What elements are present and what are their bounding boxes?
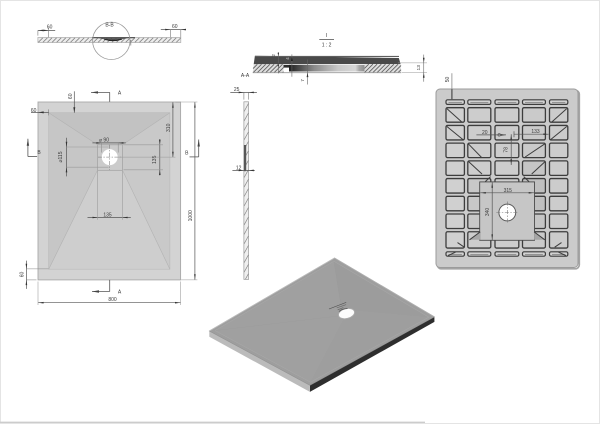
svg-text:60: 60 — [47, 25, 53, 31]
svg-text:310: 310 — [166, 123, 172, 132]
svg-text:133: 133 — [531, 129, 540, 135]
svg-text:340: 340 — [485, 208, 491, 217]
svg-text:B-B: B-B — [105, 22, 114, 28]
svg-text:I: I — [326, 33, 327, 39]
svg-text:135: 135 — [103, 212, 112, 218]
svg-text:60: 60 — [31, 108, 37, 114]
svg-text:60: 60 — [172, 24, 178, 30]
svg-text:1000: 1000 — [188, 210, 194, 221]
svg-text:315: 315 — [504, 188, 513, 194]
svg-text:135: 135 — [152, 155, 158, 164]
svg-text:60: 60 — [19, 272, 25, 278]
svg-text:60: 60 — [68, 93, 74, 99]
svg-text:20: 20 — [482, 130, 488, 136]
svg-text:13: 13 — [416, 65, 422, 71]
svg-text:A-A: A-A — [241, 73, 250, 79]
svg-text:1 : 2: 1 : 2 — [322, 43, 332, 49]
svg-text:⌀115: ⌀115 — [58, 151, 64, 162]
svg-text:78: 78 — [504, 147, 510, 153]
svg-text:800: 800 — [108, 297, 117, 303]
svg-text:50: 50 — [445, 77, 451, 83]
